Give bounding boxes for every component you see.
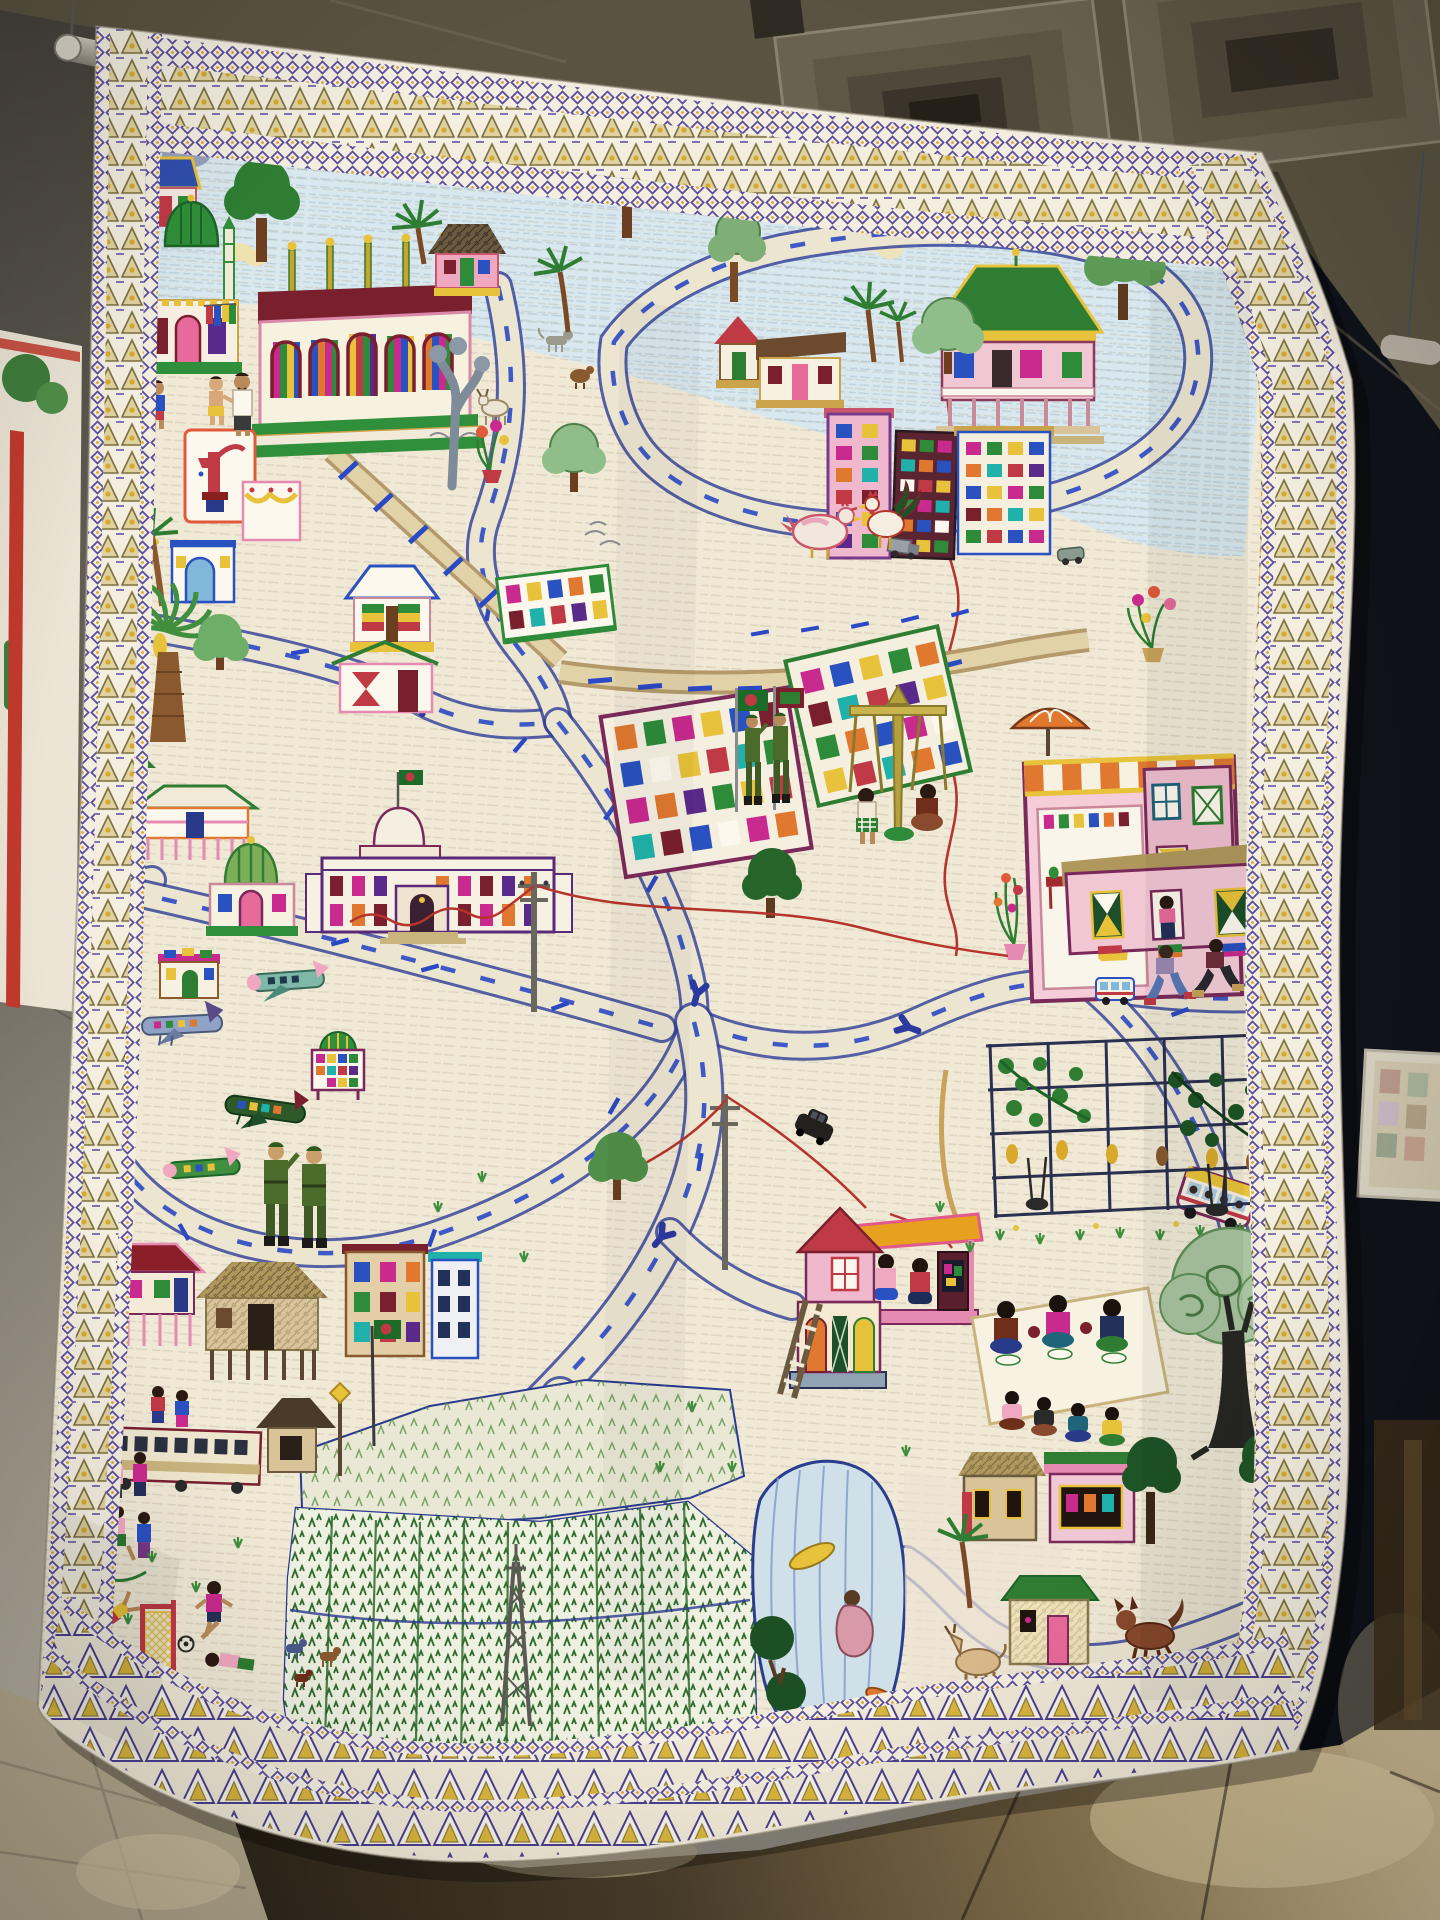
gallery-photo [0,0,1440,1920]
photo-vignette [0,0,1440,1920]
scene-canvas [0,0,1440,1920]
